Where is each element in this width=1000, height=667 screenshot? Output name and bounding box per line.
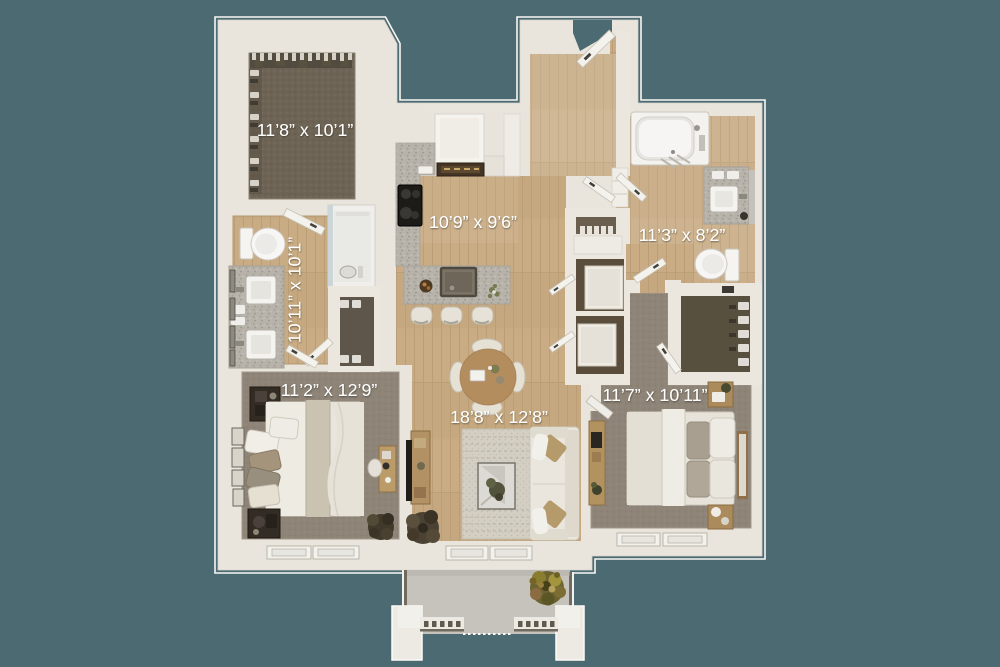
svg-text:10’9” x 9’6”: 10’9” x 9’6” <box>429 212 517 232</box>
svg-text:11’7” x 10’11”: 11’7” x 10’11” <box>602 385 707 405</box>
svg-text:11’2” x 12’9”: 11’2” x 12’9” <box>281 380 378 400</box>
svg-text:18’8” x 12’8”: 18’8” x 12’8” <box>450 407 548 427</box>
svg-text:10’11” x 10’1”: 10’11” x 10’1” <box>285 237 305 343</box>
svg-text:11’3” x 8’2”: 11’3” x 8’2” <box>639 225 726 245</box>
svg-text:11’8” x 10’1”: 11’8” x 10’1” <box>257 120 354 140</box>
